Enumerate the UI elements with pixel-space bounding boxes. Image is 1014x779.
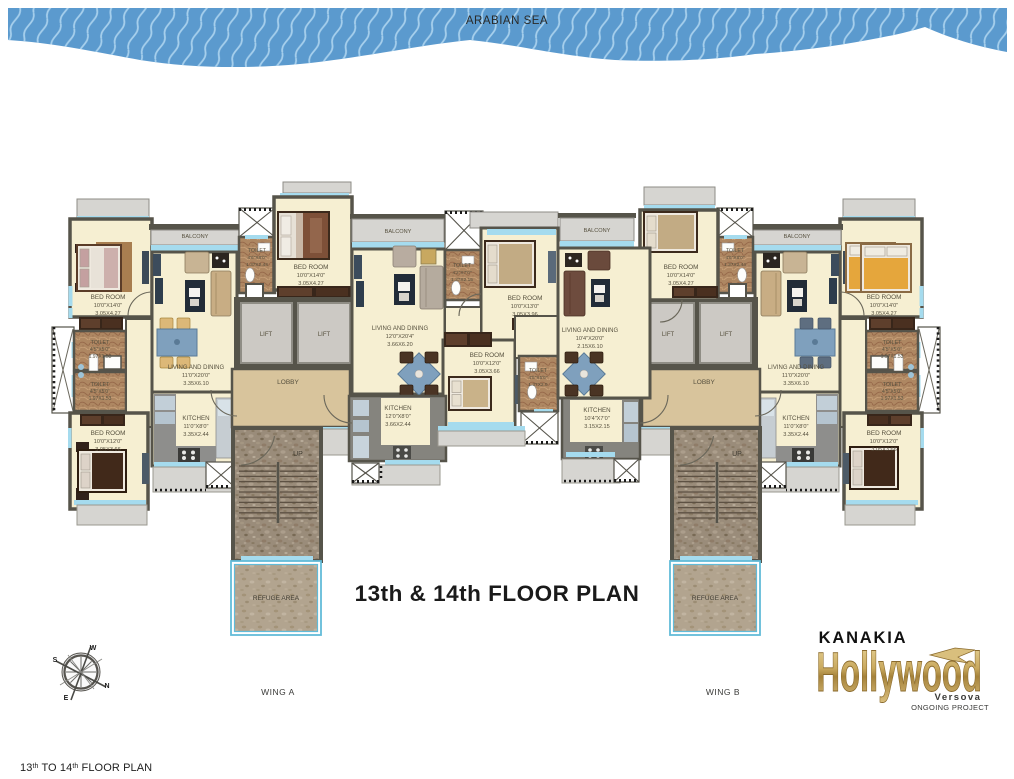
svg-text:10'0"X14'0": 10'0"X14'0" <box>667 273 696 279</box>
svg-text:LIVING AND DINING: LIVING AND DINING <box>562 328 619 334</box>
svg-text:3.05X4.27: 3.05X4.27 <box>871 311 897 317</box>
svg-text:TOILET: TOILET <box>726 248 745 254</box>
svg-text:3.05X3.66: 3.05X3.66 <box>474 369 500 375</box>
svg-text:LIFT: LIFT <box>662 332 675 338</box>
svg-text:3.35X2.44: 3.35X2.44 <box>783 432 809 438</box>
svg-text:3.05X3.66: 3.05X3.66 <box>871 447 897 453</box>
svg-text:N: N <box>104 683 109 690</box>
svg-text:11'0"X8'0": 11'0"X8'0" <box>784 424 809 430</box>
svg-text:BALCONY: BALCONY <box>584 228 611 234</box>
svg-text:REFUGE AREA: REFUGE AREA <box>692 595 739 602</box>
svg-text:S: S <box>53 657 58 664</box>
svg-text:4'5"X5'0": 4'5"X5'0" <box>90 389 110 395</box>
svg-text:3.66X2.44: 3.66X2.44 <box>385 422 411 428</box>
svg-text:BED ROOM: BED ROOM <box>867 430 902 437</box>
svg-text:UP: UP <box>293 451 303 458</box>
svg-text:LIFT: LIFT <box>260 332 273 338</box>
svg-text:10'0"X14'0": 10'0"X14'0" <box>870 303 899 309</box>
svg-text:BALCONY: BALCONY <box>182 234 209 240</box>
svg-text:3.35X2.44: 3.35X2.44 <box>183 432 209 438</box>
svg-text:TOILET: TOILET <box>529 368 548 374</box>
svg-text:Versova: Versova <box>935 692 982 703</box>
svg-text:10'0"X14'0": 10'0"X14'0" <box>94 303 123 309</box>
svg-text:1.97X1.53: 1.97X1.53 <box>89 354 112 360</box>
svg-text:KITCHEN: KITCHEN <box>384 405 411 412</box>
svg-text:1.37X2.44: 1.37X2.44 <box>724 262 746 268</box>
svg-text:LIFT: LIFT <box>720 332 733 338</box>
svg-text:11'0"X20'0": 11'0"X20'0" <box>182 373 210 379</box>
svg-text:LIVING AND DINING: LIVING AND DINING <box>168 365 225 371</box>
svg-text:10'4"X7'0": 10'4"X7'0" <box>584 416 609 422</box>
svg-text:1.37X2.15: 1.37X2.15 <box>451 277 473 283</box>
svg-text:3.66X6.20: 3.66X6.20 <box>387 342 413 348</box>
svg-text:LIVING AND DINING: LIVING AND DINING <box>768 365 825 371</box>
svg-text:4'6"X8'0": 4'6"X8'0" <box>725 255 744 261</box>
svg-text:3.05X4.27: 3.05X4.27 <box>298 281 324 287</box>
svg-text:BED ROOM: BED ROOM <box>664 264 699 271</box>
svg-text:3.15X2.15: 3.15X2.15 <box>584 424 610 430</box>
svg-text:W: W <box>90 645 97 652</box>
svg-text:10'0"X12'0": 10'0"X12'0" <box>94 439 123 445</box>
svg-text:4'6"X8'0": 4'6"X8'0" <box>247 255 266 261</box>
svg-text:TOILET: TOILET <box>453 263 472 269</box>
svg-text:11'0"X8'0": 11'0"X8'0" <box>184 424 209 430</box>
svg-text:10'0"X12'0": 10'0"X12'0" <box>870 439 899 445</box>
svg-text:WING A: WING A <box>261 687 295 697</box>
svg-text:4'5"X5'6": 4'5"X5'6" <box>528 375 547 381</box>
svg-text:4'5"X5'0": 4'5"X5'0" <box>882 389 902 395</box>
svg-text:UP: UP <box>732 451 742 458</box>
svg-text:TOILET: TOILET <box>91 340 110 346</box>
svg-text:BALCONY: BALCONY <box>385 229 412 235</box>
svg-text:LIFT: LIFT <box>318 332 331 338</box>
svg-text:4'5"X5'0": 4'5"X5'0" <box>882 347 902 353</box>
svg-text:ARABIAN SEA: ARABIAN SEA <box>466 15 548 27</box>
svg-text:3.05X4.27: 3.05X4.27 <box>95 311 121 317</box>
svg-text:1.97X1.53: 1.97X1.53 <box>89 396 112 402</box>
svg-text:10'4"X20'0": 10'4"X20'0" <box>576 336 605 342</box>
svg-text:LIVING AND DINING: LIVING AND DINING <box>372 326 429 332</box>
svg-text:3.05X4.27: 3.05X4.27 <box>668 281 694 287</box>
svg-text:E: E <box>64 695 69 702</box>
svg-text:1.37X2.0: 1.37X2.0 <box>528 382 548 388</box>
svg-text:TOILET: TOILET <box>248 248 267 254</box>
svg-text:13th TO 14th FLOOR PLAN: 13th TO 14th FLOOR PLAN <box>20 762 152 774</box>
svg-text:KITCHEN: KITCHEN <box>182 415 209 422</box>
svg-text:KITCHEN: KITCHEN <box>583 407 610 414</box>
svg-text:11'0"X20'0": 11'0"X20'0" <box>782 373 810 379</box>
svg-text:1.97X1.53: 1.97X1.53 <box>881 354 904 360</box>
svg-text:3.35X6.10: 3.35X6.10 <box>783 381 809 387</box>
svg-text:WING B: WING B <box>706 687 740 697</box>
svg-text:BED ROOM: BED ROOM <box>867 294 902 301</box>
svg-text:10'0"X14'0": 10'0"X14'0" <box>297 273 326 279</box>
svg-text:12'0"X20'4": 12'0"X20'4" <box>386 334 415 340</box>
svg-text:REFUGE AREA: REFUGE AREA <box>253 595 300 602</box>
svg-text:4'2"X7'0": 4'2"X7'0" <box>452 270 471 276</box>
svg-text:BALCONY: BALCONY <box>784 234 811 240</box>
svg-text:TOILET: TOILET <box>883 382 902 388</box>
svg-text:3.05X3.96: 3.05X3.96 <box>512 312 538 318</box>
svg-text:1.97X1.53: 1.97X1.53 <box>881 396 904 402</box>
svg-text:LOBBY: LOBBY <box>277 379 299 386</box>
svg-text:1.37X2.44: 1.37X2.44 <box>246 262 268 268</box>
svg-text:BED ROOM: BED ROOM <box>470 352 505 359</box>
svg-text:TOILET: TOILET <box>883 340 902 346</box>
svg-text:BED ROOM: BED ROOM <box>91 294 126 301</box>
svg-text:3.35X6.10: 3.35X6.10 <box>183 381 209 387</box>
svg-text:3.05X3.66: 3.05X3.66 <box>95 447 121 453</box>
svg-text:10'0"X12'0": 10'0"X12'0" <box>473 361 502 367</box>
svg-text:12'0"X8'0": 12'0"X8'0" <box>385 414 410 420</box>
svg-text:BED ROOM: BED ROOM <box>294 264 329 271</box>
svg-text:10'0"X13'0": 10'0"X13'0" <box>511 304 540 310</box>
svg-text:LOBBY: LOBBY <box>693 379 715 386</box>
svg-text:BED ROOM: BED ROOM <box>91 430 126 437</box>
svg-text:13th & 14th FLOOR PLAN: 13th & 14th FLOOR PLAN <box>355 581 640 606</box>
svg-text:TOILET: TOILET <box>91 382 110 388</box>
svg-text:BED ROOM: BED ROOM <box>508 295 543 302</box>
svg-text:KITCHEN: KITCHEN <box>782 415 809 422</box>
svg-text:2.15X6.10: 2.15X6.10 <box>577 344 603 350</box>
svg-text:4'5"X5'0": 4'5"X5'0" <box>90 347 110 353</box>
svg-text:ONGOING PROJECT: ONGOING PROJECT <box>911 703 989 712</box>
